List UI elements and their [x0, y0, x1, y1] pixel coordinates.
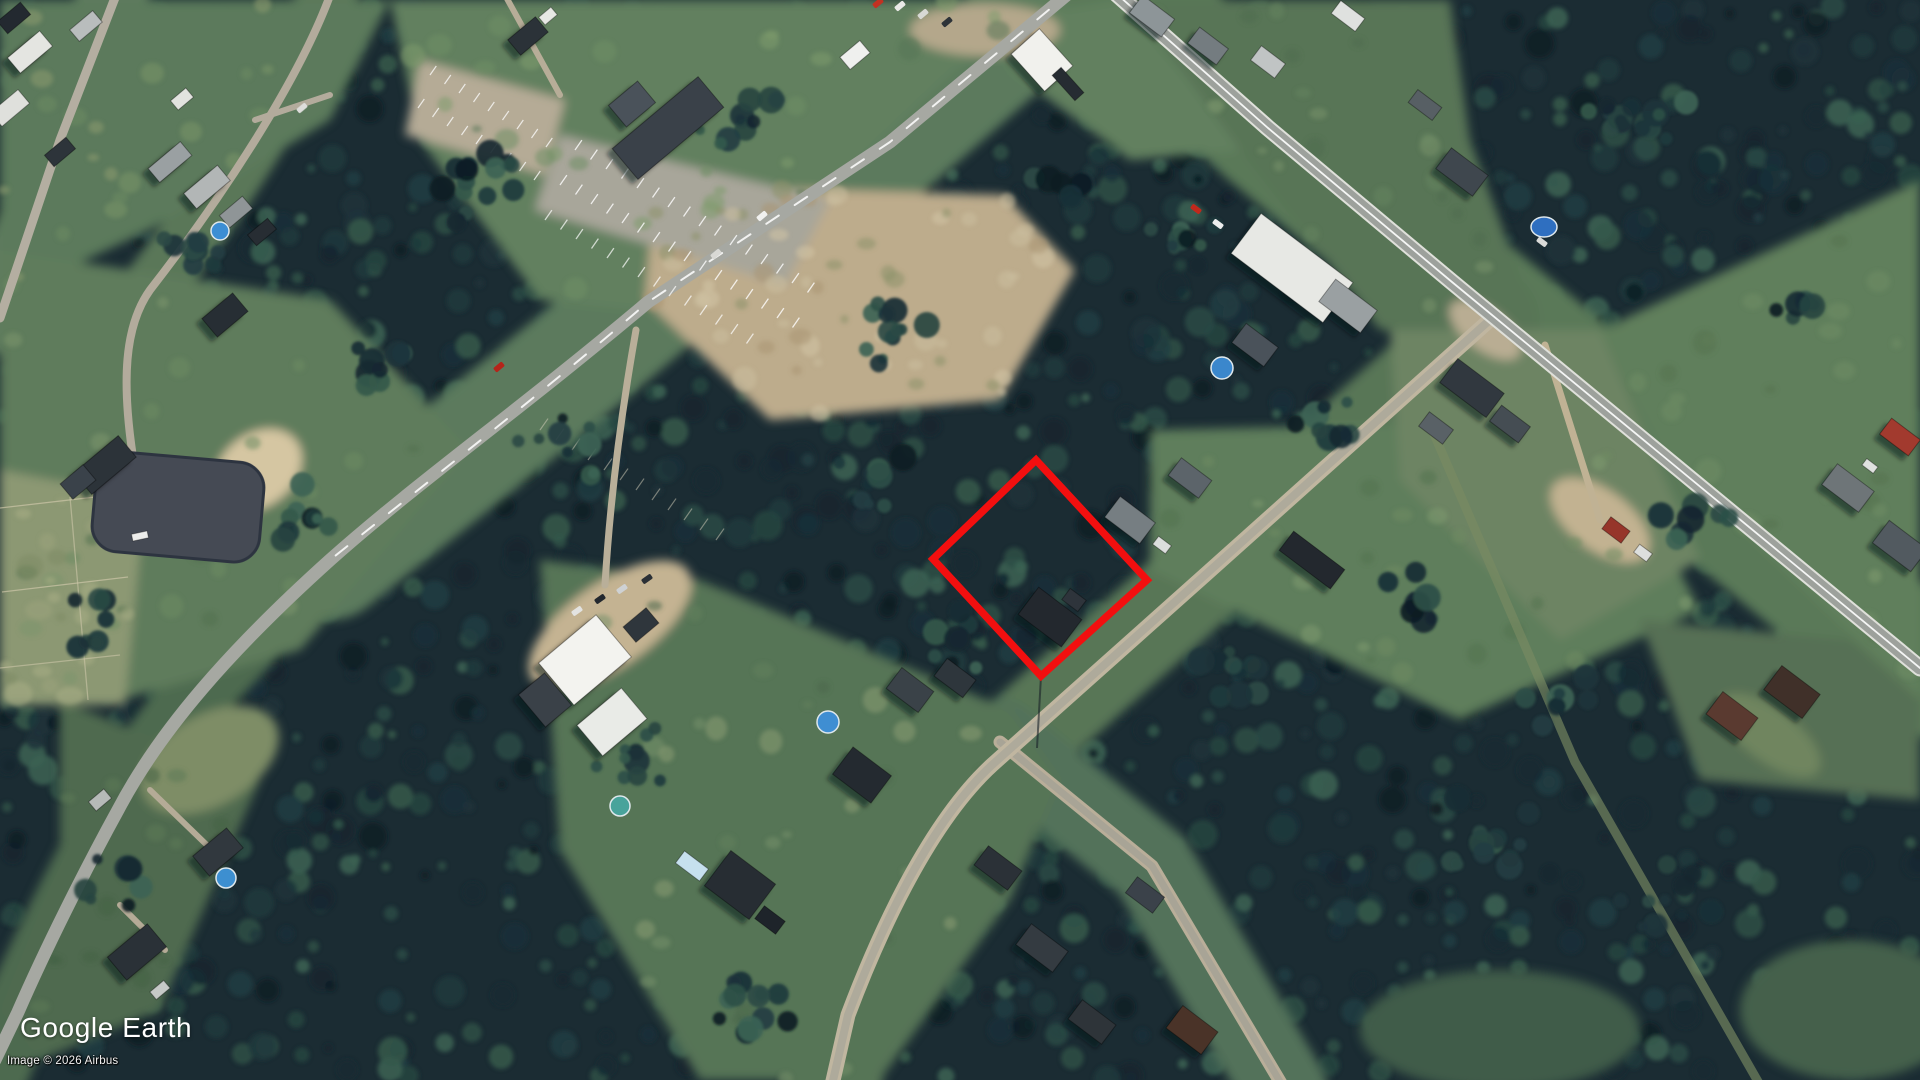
- google-earth-viewport: Google Earth Image © 2026 Airbus: [0, 0, 1920, 1080]
- google-earth-logo: Google Earth: [20, 1012, 192, 1044]
- imagery-attribution: Image © 2026 Airbus: [7, 1055, 118, 1067]
- satellite-imagery[interactable]: [0, 0, 1920, 1080]
